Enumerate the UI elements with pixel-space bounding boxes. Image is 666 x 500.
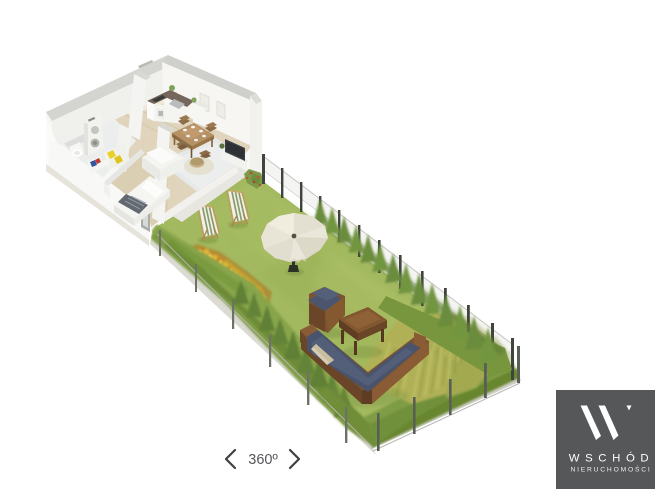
svg-text:360º: 360º <box>248 452 278 468</box>
svg-text:NIERUCHOMOŚCI: NIERUCHOMOŚCI <box>571 465 652 474</box>
svg-text:WSCHÓD: WSCHÓD <box>569 452 655 465</box>
